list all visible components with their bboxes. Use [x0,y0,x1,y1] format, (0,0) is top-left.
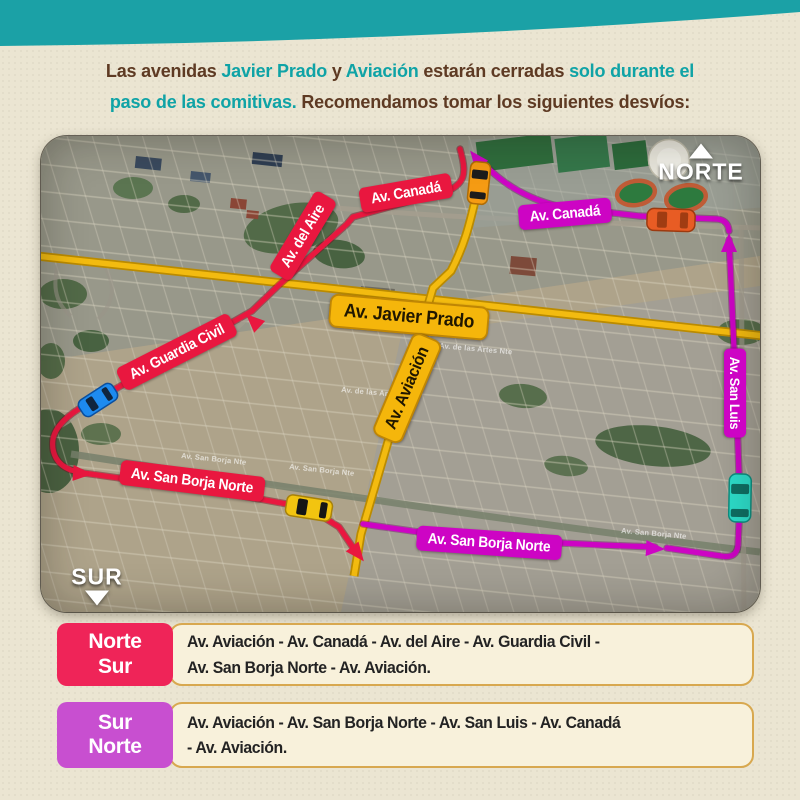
headline-text: estarán cerradas [419,61,570,81]
headline-highlight-aviacion: Aviación [346,61,419,81]
headline: Las avenidas Javier Prado y Aviación est… [50,56,750,118]
headline-highlight-javier-prado: Javier Prado [221,61,327,81]
legend-row-sur-norte: Av. Aviación - Av. San Borja Norte - Av.… [57,702,754,768]
detour-map: Av. San Borja NteAv. San Borja NteAv. Sa… [41,136,760,612]
infographic-poster: Las avenidas Javier Prado y Aviación est… [0,0,800,800]
route-label-red-av-canad-: Av. Canadá [358,172,454,213]
teal-header-band [0,0,800,60]
legend-row-norte-sur: Av. Aviación - Av. Canadá - Av. del Aire… [57,623,754,686]
route-label-red-av-guardia-civil: Av. Guardia Civil [115,312,239,392]
direction-label: Sur [98,655,132,679]
headline-line-2: paso de las comitivas. Recomendamos toma… [50,87,750,118]
route-label-magenta-av-san-borja-norte: Av. San Borja Norte [416,525,562,560]
legend-route-text: Av. Aviación - Av. San Borja Norte - Av.… [187,710,698,736]
route-label-yellow-av-javier-prado: Av. Javier Prado [328,293,490,341]
headline-text: Recomendamos tomar los siguientes desvío… [297,92,691,112]
south-arrow-icon [85,591,109,606]
route-label-red-av-del-aire: Av. del Aire [268,190,337,282]
direction-label: Sur [98,711,132,735]
route-label-yellow-av-aviaci-n: Av. Aviación [371,330,444,445]
compass-north-label: NORTE [658,159,744,186]
legend-direction-norte-sur: Norte Sur [57,623,173,686]
legend-direction-sur-norte: Sur Norte [57,702,173,768]
north-arrow-icon [689,144,713,159]
legend-route-text: Av. Aviación - Av. Canadá - Av. del Aire… [187,629,698,655]
headline-text: y [327,61,346,81]
direction-label: Norte [88,630,141,654]
headline-line-1: Las avenidas Javier Prado y Aviación est… [50,56,750,87]
headline-highlight-comitivas: paso de las comitivas. [110,92,297,112]
route-label-magenta-av-canad-: Av. Canadá [518,197,613,230]
route-label-magenta-av-san-luis: Av. San Luis [724,348,746,437]
legend-route-sur-norte: Av. Aviación - Av. San Borja Norte - Av.… [169,702,754,768]
map-overlay: NORTE SUR Av. CanadáAv. CanadáAv. del Ai… [41,136,760,612]
headline-text: Las avenidas [106,61,221,81]
legend-route-text: Av. San Borja Norte - Av. Aviación. [187,655,698,681]
route-label-red-av-san-borja-norte: Av. San Borja Norte [119,460,266,503]
legend-route-norte-sur: Av. Aviación - Av. Canadá - Av. del Aire… [169,623,754,686]
direction-label: Norte [88,735,141,759]
legend-route-text: - Av. Aviación. [187,735,698,761]
compass-south-label: SUR [71,564,123,591]
headline-highlight-solo-durante: solo durante el [569,61,694,81]
